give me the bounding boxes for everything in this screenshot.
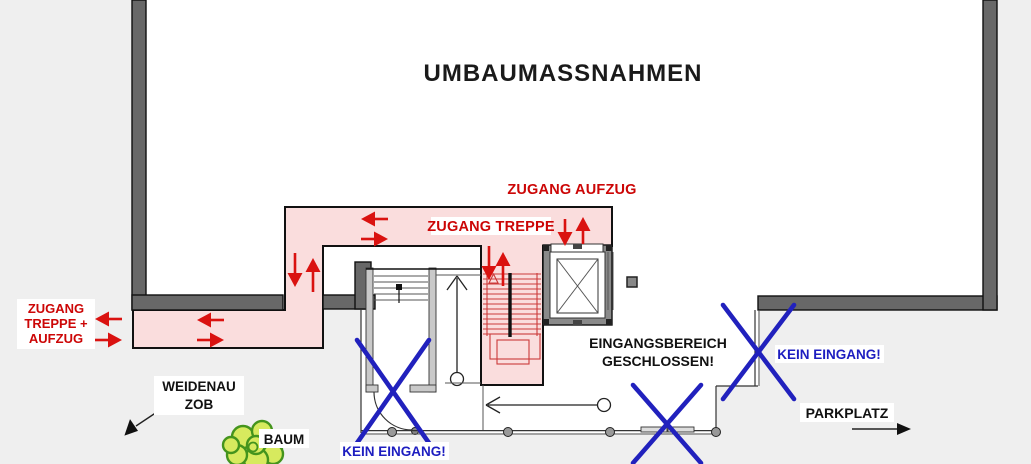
svg-text:EINGANGSBEREICH: EINGANGSBEREICH: [589, 335, 727, 351]
page-title: UMBAUMASSNAHMEN: [424, 60, 703, 87]
svg-text:GESCHLOSSEN!: GESCHLOSSEN!: [602, 353, 714, 369]
floor-plan-canvas: UMBAUMASSNAHMEN ZUGANG AUFZUG ZUGANG TRE…: [0, 0, 1031, 464]
label-bus-station: WEIDENAU ZOB: [154, 376, 244, 415]
svg-text:ZUGANG: ZUGANG: [28, 301, 84, 316]
elevator-shaft: [543, 244, 612, 325]
column-square: [627, 277, 637, 287]
wall-east: [983, 0, 997, 310]
svg-text:ZOB: ZOB: [185, 397, 214, 412]
label-entrance-closed: EINGANGSBEREICH GESCHLOSSEN!: [589, 333, 727, 373]
label-no-entry-south: KEIN EINGANG!: [342, 444, 446, 459]
svg-text:WEIDENAU: WEIDENAU: [162, 379, 236, 394]
label-tree: BAUM: [264, 432, 305, 447]
svg-text:TREPPE +: TREPPE +: [24, 316, 88, 331]
label-access-stairs-elevator: ZUGANG TREPPE + AUFZUG: [17, 299, 95, 349]
label-no-entry-east: KEIN EINGANG!: [777, 347, 881, 362]
label-access-stairs: ZUGANG TREPPE: [427, 219, 555, 235]
label-access-elevator: ZUGANG AUFZUG: [507, 182, 636, 198]
wall-south-left: [132, 295, 283, 310]
floor-plan: UMBAUMASSNAHMEN ZUGANG AUFZUG ZUGANG TRE…: [0, 0, 1031, 464]
wall-west: [132, 0, 146, 310]
svg-text:AUFZUG: AUFZUG: [29, 331, 83, 346]
label-parking: PARKPLATZ: [806, 405, 889, 421]
